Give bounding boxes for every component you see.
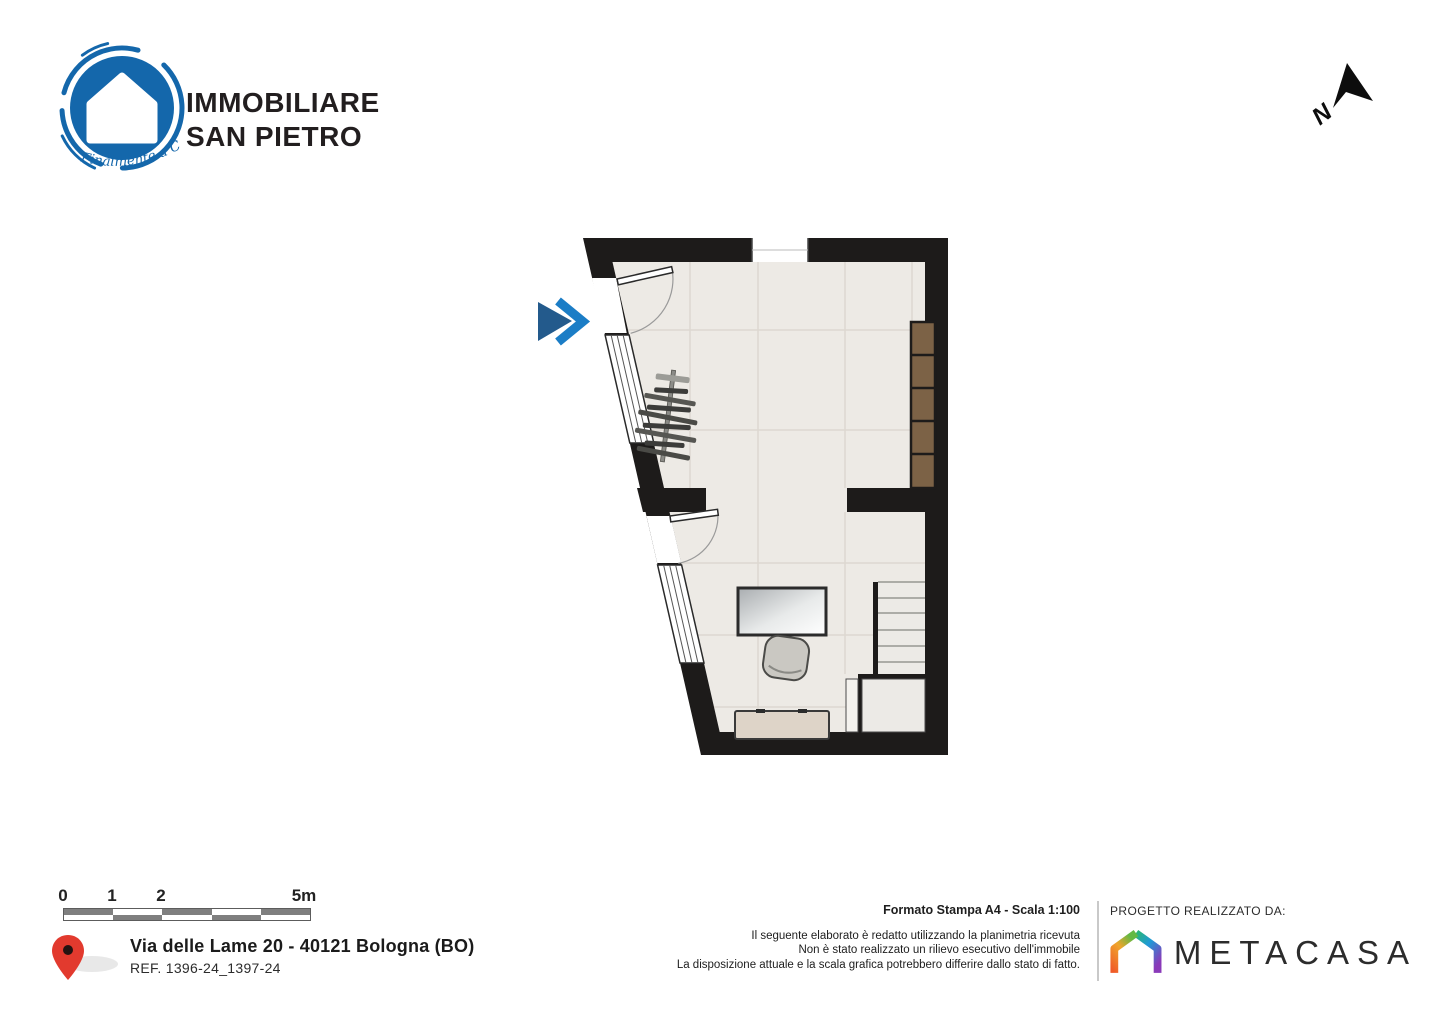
scale-label-0: 0 xyxy=(50,886,76,906)
reference-text: REF. 1396-24_1397-24 xyxy=(130,960,474,976)
metacasa-logo-icon xyxy=(1110,925,1162,981)
credits-block: PROGETTO REALIZZATO DA: xyxy=(1097,901,1417,981)
disclaimer-line-3: La disposizione attuale e la scala grafi… xyxy=(610,958,1080,972)
entry-arrow-icon xyxy=(538,301,583,342)
agency-logo: Finalmente a Casa IMMOBILIARE SAN PIETRO xyxy=(40,28,440,198)
office-chair-icon xyxy=(761,634,810,682)
shelving-unit-icon xyxy=(911,322,935,488)
window-top xyxy=(752,238,808,262)
stair-landing xyxy=(862,679,925,732)
scale-label-2: 2 xyxy=(148,886,174,906)
agency-logo-icon xyxy=(40,28,210,196)
disclaimer-line-2: Non è stato realizzato un rilievo esecut… xyxy=(610,943,1080,957)
print-info-block: Formato Stampa A4 - Scala 1:100 Il segue… xyxy=(610,903,1080,972)
disclaimer-line-1: Il seguente elaborato è redatto utilizza… xyxy=(610,929,1080,943)
address-text: Via delle Lame 20 - 40121 Bologna (BO) xyxy=(130,936,474,957)
sideboard-icon xyxy=(735,709,829,739)
agency-name-line1: IMMOBILIARE xyxy=(186,87,380,118)
north-arrow-icon xyxy=(1333,63,1373,108)
print-format-text: Formato Stampa A4 - Scala 1:100 xyxy=(610,903,1080,917)
agency-name-line2: SAN PIETRO xyxy=(186,121,362,152)
scale-bar-graphic xyxy=(63,908,311,921)
north-label: N xyxy=(1307,98,1338,130)
scale-label-5m: 5m xyxy=(287,886,321,906)
location-pin-icon xyxy=(50,932,122,984)
scale-label-1: 1 xyxy=(99,886,125,906)
metacasa-wordmark: METACASA xyxy=(1174,934,1417,972)
credits-label: PROGETTO REALIZZATO DA: xyxy=(1110,904,1417,918)
north-arrow: N xyxy=(1295,46,1395,136)
floor-plan-page: Finalmente a Casa IMMOBILIARE SAN PIETRO… xyxy=(0,0,1440,1017)
desk-icon xyxy=(738,588,826,635)
location-block: Via delle Lame 20 - 40121 Bologna (BO) R… xyxy=(50,932,510,984)
scale-bar: 0 1 2 5m xyxy=(55,886,335,926)
floor-plan xyxy=(505,225,975,785)
